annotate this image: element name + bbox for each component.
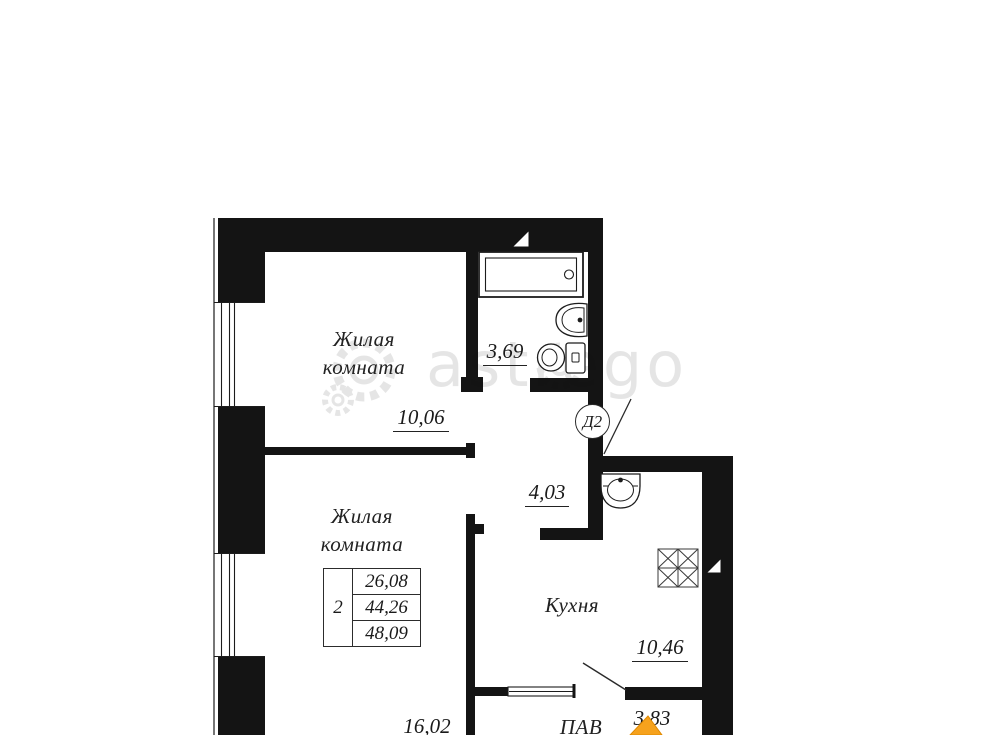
kitchen-sink-icon xyxy=(601,474,640,508)
wall-right-upper xyxy=(588,218,603,533)
wall-room2-right xyxy=(466,514,475,735)
wall-bottom-right xyxy=(625,687,702,700)
room1-label: Жилая комната xyxy=(300,326,428,381)
stove-icon xyxy=(658,549,698,587)
wall-kitchen-right xyxy=(702,456,733,735)
wall-bottom-stub-left xyxy=(475,687,508,696)
bathtub-icon xyxy=(479,252,583,297)
summary-area: 44,26 xyxy=(353,595,420,621)
hall-lower-label: ПАВ xyxy=(550,714,612,735)
room2-area: 16,02 xyxy=(396,714,458,735)
room1-area: 10,06 xyxy=(389,405,453,430)
window-upper xyxy=(214,302,265,407)
wall-room-divider xyxy=(265,447,466,455)
window-lower xyxy=(214,553,265,657)
wall-room-divider-cap xyxy=(466,443,475,458)
wall-top xyxy=(218,218,603,252)
wall-room2-door-jamb xyxy=(475,524,484,534)
door-label-badge: Д2 xyxy=(575,404,610,439)
kitchen-label: Кухня xyxy=(534,592,610,620)
wall-hall-stub xyxy=(540,528,603,540)
summary-rooms-count: 2 xyxy=(324,569,353,646)
summary-living-area: 26,08 xyxy=(353,569,420,595)
wall-left-upper xyxy=(218,218,265,302)
bathroom-sink-icon xyxy=(556,303,587,336)
kitchen-area: 10,46 xyxy=(628,635,692,660)
floor-plan-image: astrego Жилая комната 10,06 3,69 4,03 Жи… xyxy=(0,0,1000,735)
toilet-icon xyxy=(538,343,586,373)
threshold-icon xyxy=(508,684,576,698)
door-swing-icon xyxy=(583,663,626,690)
wall-bathroom-bottom xyxy=(530,378,588,392)
hall-lower-area: 3,83 xyxy=(620,706,684,731)
apartment-summary-table: 2 26,08 44,26 48,09 xyxy=(323,568,421,647)
hall-upper-area: 4,03 xyxy=(519,480,575,505)
room2-label: Жилая комната xyxy=(298,503,426,558)
wall-left-middle xyxy=(218,407,265,553)
bathroom-area: 3,69 xyxy=(476,339,534,364)
wall-left-lower xyxy=(218,657,265,735)
summary-total-area: 48,09 xyxy=(353,621,420,646)
wall-bathroom-left-cap xyxy=(461,377,483,392)
door-label: Д2 xyxy=(583,412,602,432)
